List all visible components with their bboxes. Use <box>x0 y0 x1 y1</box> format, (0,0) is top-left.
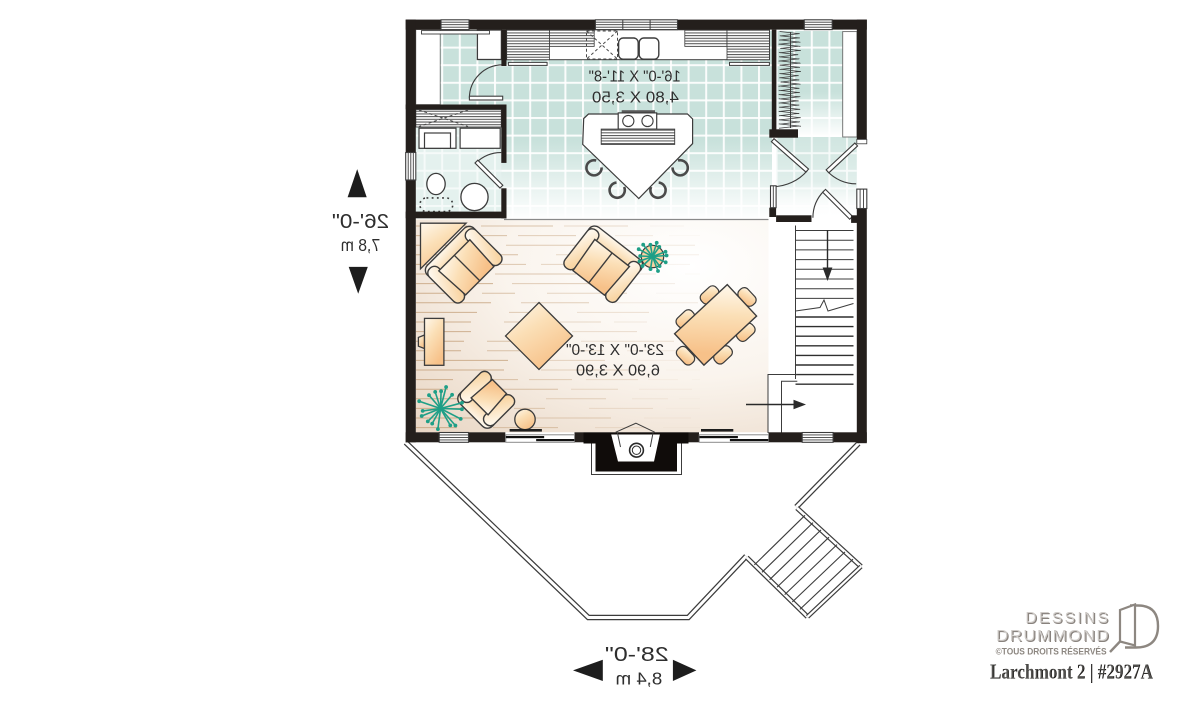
svg-text:26'-0": 26'-0" <box>332 210 389 233</box>
svg-text:Larchmont 2 | #2927A: Larchmont 2 | #2927A <box>989 659 1153 683</box>
svg-text:DRUMMOND: DRUMMOND <box>996 628 1110 645</box>
svg-text:23'-0" X 13'-0": 23'-0" X 13'-0" <box>566 342 664 359</box>
svg-text:6,90 X 3,90: 6,90 X 3,90 <box>576 363 660 380</box>
svg-text:DESSINS: DESSINS <box>1025 610 1110 627</box>
svg-text:4,80 X 3,50: 4,80 X 3,50 <box>592 89 679 106</box>
svg-text:16'-0" X 11'-8": 16'-0" X 11'-8" <box>589 69 681 86</box>
svg-text:©TOUS DROITS RÉSERVÉS: ©TOUS DROITS RÉSERVÉS <box>996 646 1107 657</box>
svg-text:28'-0": 28'-0" <box>605 643 669 666</box>
svg-text:7,8 m: 7,8 m <box>341 235 380 255</box>
svg-text:8,4 m: 8,4 m <box>616 669 663 689</box>
